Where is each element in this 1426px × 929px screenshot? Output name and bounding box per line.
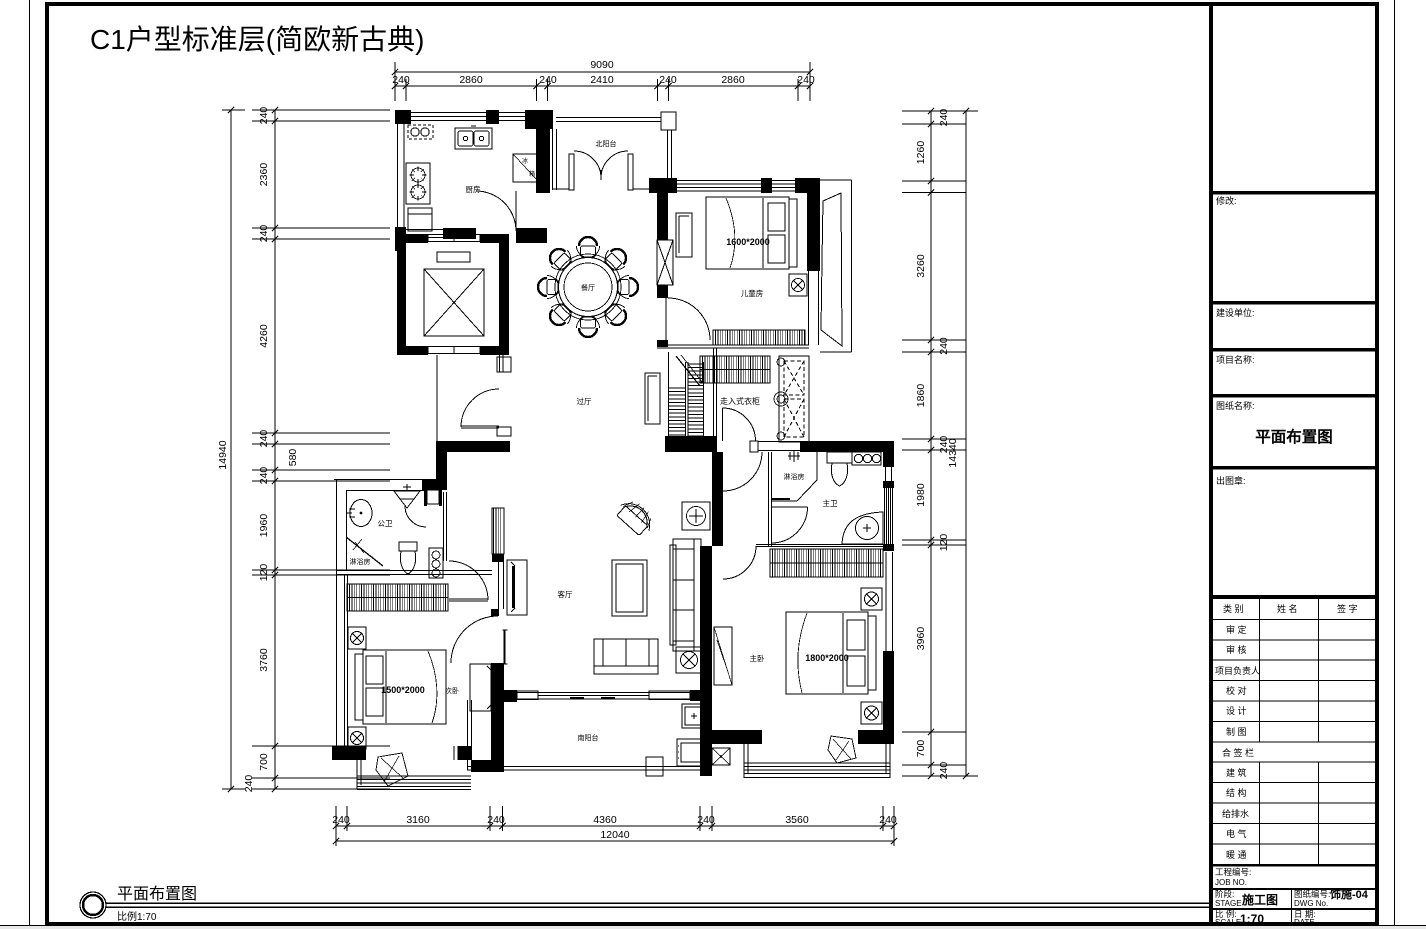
svg-text:240: 240 bbox=[938, 762, 950, 780]
svg-text:淋浴房: 淋浴房 bbox=[350, 557, 371, 566]
svg-text:240: 240 bbox=[659, 74, 677, 86]
svg-text:北阳台: 北阳台 bbox=[596, 139, 617, 148]
svg-text:建 筑: 建 筑 bbox=[1226, 767, 1247, 778]
svg-text:3960: 3960 bbox=[915, 627, 927, 651]
svg-text:平面布置图: 平面布置图 bbox=[1255, 427, 1333, 446]
svg-text:1600*2000: 1600*2000 bbox=[726, 237, 770, 247]
svg-text:240: 240 bbox=[258, 107, 270, 125]
svg-text:类 别: 类 别 bbox=[1223, 603, 1244, 614]
svg-text:2860: 2860 bbox=[721, 74, 745, 86]
svg-text:C1户型标准层(简欧新古典): C1户型标准层(简欧新古典) bbox=[90, 24, 424, 55]
svg-text:校 对: 校 对 bbox=[1226, 685, 1247, 696]
svg-text:电 气: 电 气 bbox=[1226, 828, 1247, 839]
svg-text:240: 240 bbox=[938, 109, 950, 127]
svg-text:公卫: 公卫 bbox=[378, 519, 393, 528]
svg-text:过厅: 过厅 bbox=[577, 396, 592, 406]
svg-text:3760: 3760 bbox=[258, 648, 270, 672]
svg-text:1260: 1260 bbox=[915, 141, 927, 165]
svg-text:图纸名称:: 图纸名称: bbox=[1216, 400, 1255, 411]
svg-text:3160: 3160 bbox=[406, 814, 430, 826]
svg-text:主卫: 主卫 bbox=[823, 498, 838, 508]
svg-text:120: 120 bbox=[938, 534, 950, 552]
svg-text:DWG No.: DWG No. bbox=[1294, 899, 1328, 908]
svg-text:1960: 1960 bbox=[258, 514, 270, 538]
svg-text:240: 240 bbox=[258, 225, 270, 243]
svg-text:4360: 4360 bbox=[593, 814, 617, 826]
svg-text:项目负责人: 项目负责人 bbox=[1215, 665, 1260, 676]
svg-text:2360: 2360 bbox=[258, 163, 270, 187]
svg-text:700: 700 bbox=[915, 740, 927, 758]
svg-text:3260: 3260 bbox=[915, 254, 927, 278]
svg-text:修改:: 修改: bbox=[1216, 195, 1237, 206]
svg-text:240: 240 bbox=[938, 337, 950, 355]
svg-text:DATE: DATE bbox=[1294, 918, 1315, 927]
svg-text:1980: 1980 bbox=[915, 483, 927, 507]
svg-text:审 定: 审 定 bbox=[1226, 624, 1247, 635]
svg-text:南阳台: 南阳台 bbox=[578, 733, 599, 742]
svg-text:240: 240 bbox=[243, 775, 255, 793]
svg-text:儿童房: 儿童房 bbox=[741, 288, 764, 298]
svg-text:工程编号:: 工程编号: bbox=[1215, 867, 1251, 877]
svg-text:建设单位:: 建设单位: bbox=[1216, 307, 1255, 318]
svg-text:出图章:: 出图章: bbox=[1216, 475, 1246, 486]
svg-text:客厅: 客厅 bbox=[558, 589, 573, 599]
svg-text:设 计: 设 计 bbox=[1226, 705, 1247, 716]
svg-text:箱: 箱 bbox=[529, 170, 535, 178]
svg-text:240: 240 bbox=[938, 436, 950, 454]
svg-text:580: 580 bbox=[287, 449, 299, 467]
svg-text:淋浴房: 淋浴房 bbox=[784, 472, 805, 481]
svg-text:合 签 栏: 合 签 栏 bbox=[1222, 747, 1254, 758]
svg-text:240: 240 bbox=[539, 74, 557, 86]
svg-text:240: 240 bbox=[879, 814, 897, 826]
svg-text:走入式衣柜: 走入式衣柜 bbox=[720, 396, 760, 406]
svg-text:给排水: 给排水 bbox=[1222, 808, 1249, 819]
svg-text:制 图: 制 图 bbox=[1226, 726, 1247, 737]
svg-text:9090: 9090 bbox=[590, 59, 614, 71]
svg-text:平面布置图: 平面布置图 bbox=[117, 885, 197, 903]
svg-text:施工图: 施工图 bbox=[1242, 892, 1278, 907]
svg-text:审 核: 审 核 bbox=[1226, 644, 1247, 655]
svg-text:1800*2000: 1800*2000 bbox=[805, 653, 849, 663]
svg-text:冰: 冰 bbox=[522, 157, 528, 165]
svg-text:3560: 3560 bbox=[785, 814, 809, 826]
svg-text:240: 240 bbox=[487, 814, 505, 826]
svg-text:阶段:: 阶段: bbox=[1215, 889, 1234, 899]
svg-text:1500*2000: 1500*2000 bbox=[381, 685, 425, 695]
svg-text:签 字: 签 字 bbox=[1337, 603, 1358, 614]
svg-text:1860: 1860 bbox=[915, 384, 927, 408]
svg-text:240: 240 bbox=[258, 430, 270, 448]
svg-text:比例1:70: 比例1:70 bbox=[117, 910, 157, 923]
svg-text:次卧: 次卧 bbox=[445, 686, 459, 695]
svg-text:4260: 4260 bbox=[258, 324, 270, 348]
svg-text:700: 700 bbox=[258, 753, 270, 771]
svg-text:240: 240 bbox=[697, 814, 715, 826]
svg-text:暖 通: 暖 通 bbox=[1226, 849, 1247, 860]
svg-text:项目名称:: 项目名称: bbox=[1216, 354, 1255, 365]
svg-text:240: 240 bbox=[332, 814, 350, 826]
svg-text:14940: 14940 bbox=[217, 440, 229, 469]
svg-text:STAGE: STAGE bbox=[1215, 899, 1242, 908]
svg-text:主卧: 主卧 bbox=[750, 653, 765, 663]
svg-text:240: 240 bbox=[258, 467, 270, 485]
svg-text:2860: 2860 bbox=[459, 74, 483, 86]
svg-text:240: 240 bbox=[392, 74, 410, 86]
svg-text:1:70: 1:70 bbox=[1240, 912, 1264, 926]
svg-text:餐厅: 餐厅 bbox=[581, 283, 595, 292]
svg-text:结 构: 结 构 bbox=[1226, 787, 1247, 798]
svg-text:图纸编号:: 图纸编号: bbox=[1294, 889, 1330, 899]
svg-text:JOB NO.: JOB NO. bbox=[1215, 878, 1247, 887]
svg-text:12040: 12040 bbox=[600, 829, 629, 841]
svg-text:厨房: 厨房 bbox=[466, 184, 481, 194]
svg-text:姓 名: 姓 名 bbox=[1277, 603, 1298, 614]
svg-text:SCALE: SCALE bbox=[1215, 918, 1241, 927]
svg-text:2410: 2410 bbox=[590, 74, 614, 86]
svg-text:240: 240 bbox=[797, 74, 815, 86]
svg-text:饰施-04: 饰施-04 bbox=[1330, 887, 1369, 901]
svg-text:120: 120 bbox=[258, 564, 270, 582]
